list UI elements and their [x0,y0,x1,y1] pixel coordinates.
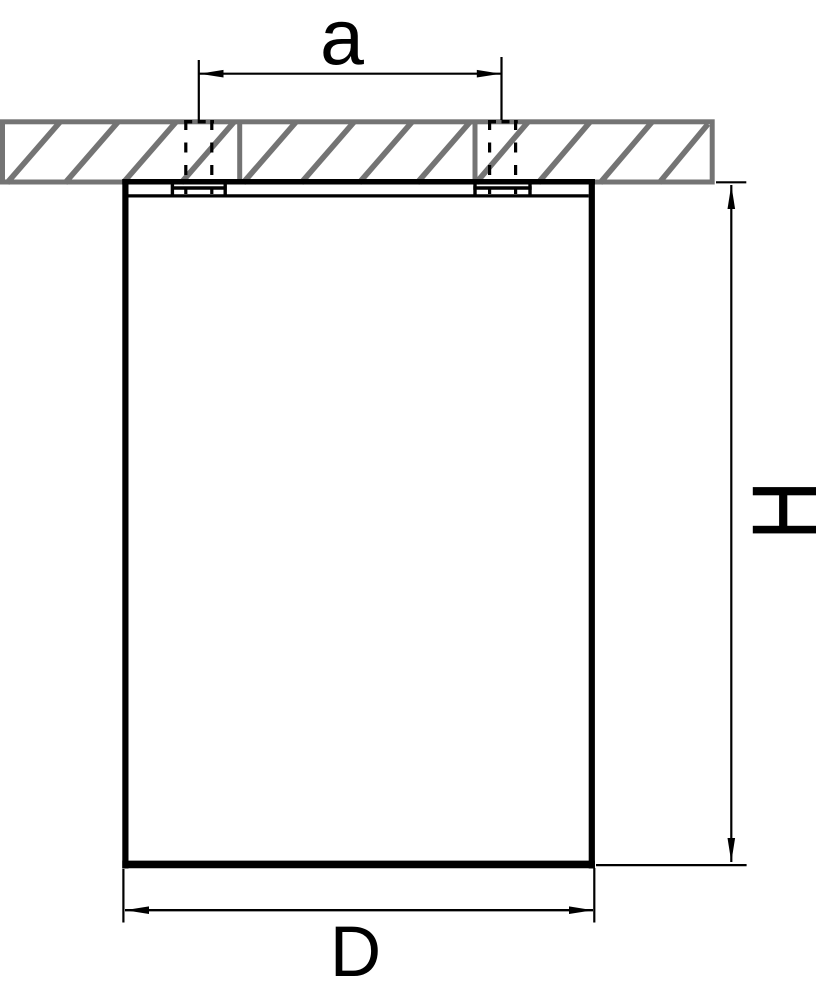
svg-text:D: D [330,913,381,992]
svg-text:a: a [320,0,364,81]
